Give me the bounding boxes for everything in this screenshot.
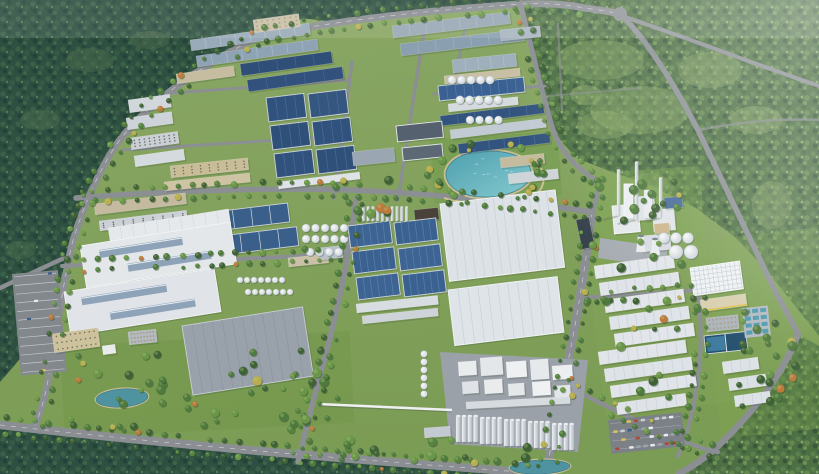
- tl-blue-hall-a1: [266, 93, 308, 123]
- chem-box-4: [530, 359, 551, 382]
- parked-car: [636, 445, 641, 448]
- parked-car: [649, 435, 654, 438]
- parked-car: [613, 430, 618, 433]
- chem-box-6: [462, 381, 480, 396]
- chem-box-7: [484, 379, 504, 396]
- parked-car: [615, 447, 620, 450]
- parked-car: [648, 426, 653, 429]
- haze-top: [0, 0, 819, 38]
- industrial-park-render: [0, 0, 819, 474]
- mega-warehouse-1: [440, 190, 566, 284]
- parked-car: [664, 434, 669, 437]
- aerial-view: [0, 0, 819, 474]
- parked-car: [635, 437, 640, 440]
- tl-blue-hall-b3: [316, 145, 358, 175]
- parked-car: [627, 429, 632, 432]
- render-canvas: [0, 0, 819, 474]
- chem-small-hall: [424, 426, 452, 440]
- chem-box-1: [458, 361, 478, 378]
- parked-car: [620, 429, 625, 432]
- tank-group-north-2: [456, 96, 503, 105]
- chem-box-9: [532, 381, 552, 398]
- tl-blue-hall-a2: [270, 121, 312, 151]
- chem-box-2: [480, 356, 505, 377]
- parked-car: [48, 272, 52, 275]
- parked-car: [633, 419, 638, 422]
- chem-box-8: [508, 383, 526, 398]
- parked-car: [655, 417, 660, 420]
- parked-car: [641, 419, 646, 422]
- chem-silos-1: [456, 415, 479, 444]
- tl-blue-hall-b2: [312, 117, 354, 147]
- parked-car: [662, 416, 667, 419]
- chem-box-3: [506, 361, 529, 380]
- chem-silos-2: [480, 417, 503, 446]
- chem-silos-3: [504, 419, 527, 448]
- parked-car: [34, 300, 38, 303]
- parked-car: [626, 420, 631, 423]
- parking-lot-west: [12, 270, 67, 376]
- parked-car: [27, 318, 31, 321]
- parked-car: [621, 438, 626, 441]
- tl-blue-hall-a3: [274, 149, 316, 179]
- tl-blue-hall-b1: [308, 89, 350, 119]
- parked-car: [664, 442, 669, 445]
- west-hvac-pad: [128, 329, 159, 347]
- parked-car: [650, 444, 655, 447]
- parked-car: [629, 446, 634, 449]
- parked-car: [657, 443, 662, 446]
- parked-car: [669, 416, 674, 419]
- tank-group-north-1: [448, 76, 495, 85]
- parked-car: [643, 444, 648, 447]
